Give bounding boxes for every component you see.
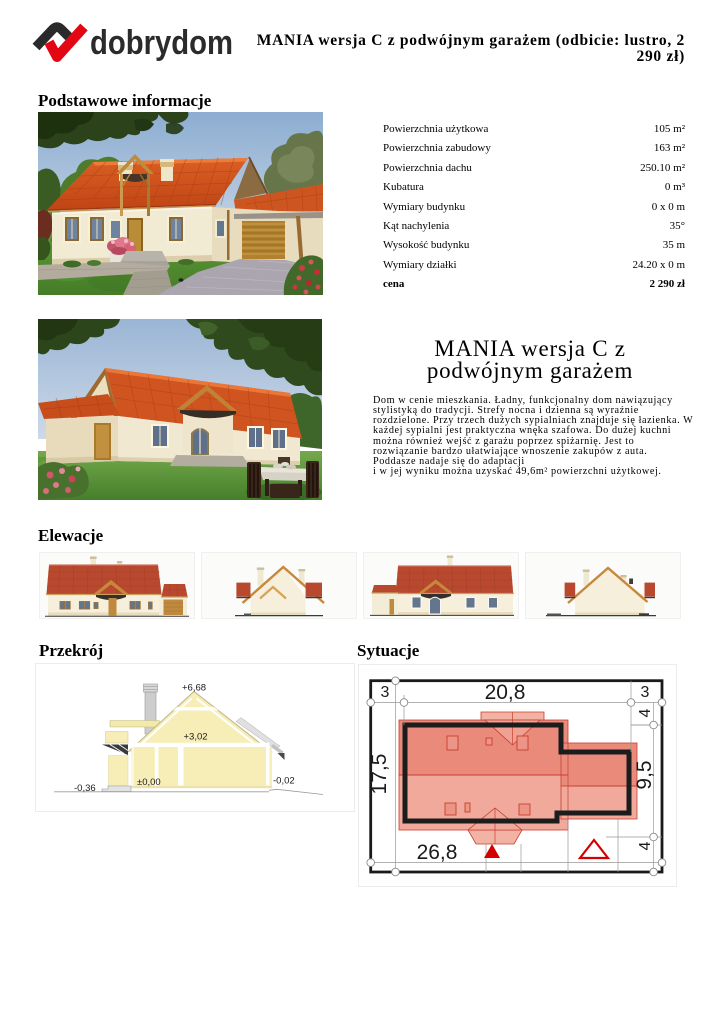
svg-text:20,8: 20,8 [485, 681, 526, 704]
svg-text:4: 4 [637, 841, 654, 850]
svg-text:±0,00: ±0,00 [137, 777, 161, 788]
svg-text:3: 3 [641, 684, 650, 701]
svg-text:26,8: 26,8 [417, 841, 458, 864]
svg-text:3: 3 [381, 684, 390, 701]
svg-text:-0,36: -0,36 [74, 783, 96, 794]
svg-text:-0,02: -0,02 [273, 776, 295, 787]
svg-text:+3,02: +3,02 [184, 732, 208, 743]
svg-text:4: 4 [637, 708, 654, 717]
svg-text:17,5: 17,5 [368, 754, 391, 795]
svg-text:dobrydom: dobrydom [90, 24, 233, 62]
svg-text:+6,68: +6,68 [182, 683, 206, 694]
svg-text:9,5: 9,5 [633, 760, 656, 789]
